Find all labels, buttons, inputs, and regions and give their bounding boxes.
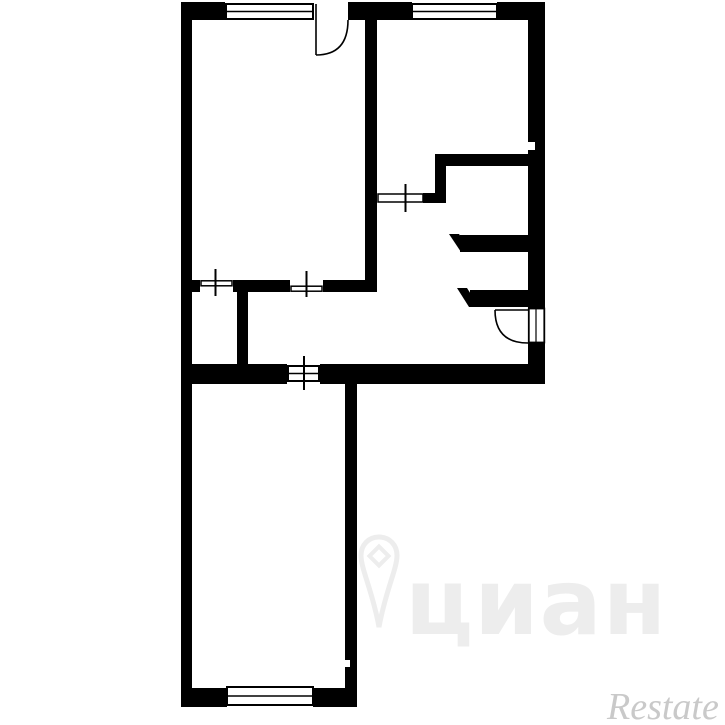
lower-room-right-wall [345, 384, 357, 707]
outer-wall-right-upper [528, 2, 545, 308]
opening-kitchen-hatch [378, 194, 423, 202]
closet-wall [237, 292, 248, 364]
door-upper-left-arc [316, 20, 348, 55]
outer-wall-top-mid-segment [348, 2, 412, 20]
leftroom-bottom-wall-b [233, 280, 290, 292]
leftroom-bottom-wall-c [323, 280, 377, 292]
interior-openings [201, 194, 423, 291]
floor-plan-image: циан Restate [0, 0, 725, 725]
outer-wall-top-left-segment [181, 2, 225, 20]
entrance-door-arc [495, 310, 528, 343]
outer-wall-bottom-b [313, 688, 357, 707]
watermark-restate-text: Restate [606, 686, 719, 725]
hall-bottom-wall-a [181, 364, 287, 384]
kitchen-bottom-wall [435, 154, 529, 166]
wc-wall [470, 290, 529, 307]
watermark-cian-text: циан [405, 549, 667, 656]
outer-wall-left [181, 2, 192, 707]
kitchen-wall-block [423, 193, 445, 203]
bathroom-wall [460, 235, 529, 252]
location-pin-icon [361, 537, 397, 627]
leftroom-bottom-wall-a [181, 280, 200, 292]
watermark-cian-logo [361, 537, 397, 627]
outer-wall-bottom-a [181, 688, 227, 707]
wall-between-upper-rooms [365, 20, 377, 292]
location-pin-hole [370, 547, 389, 566]
lower-wall-notch [345, 660, 350, 667]
floor-plan-svg: циан Restate [0, 0, 725, 725]
right-wall-notch [528, 142, 535, 150]
hall-bottom-wall-b [320, 364, 545, 384]
